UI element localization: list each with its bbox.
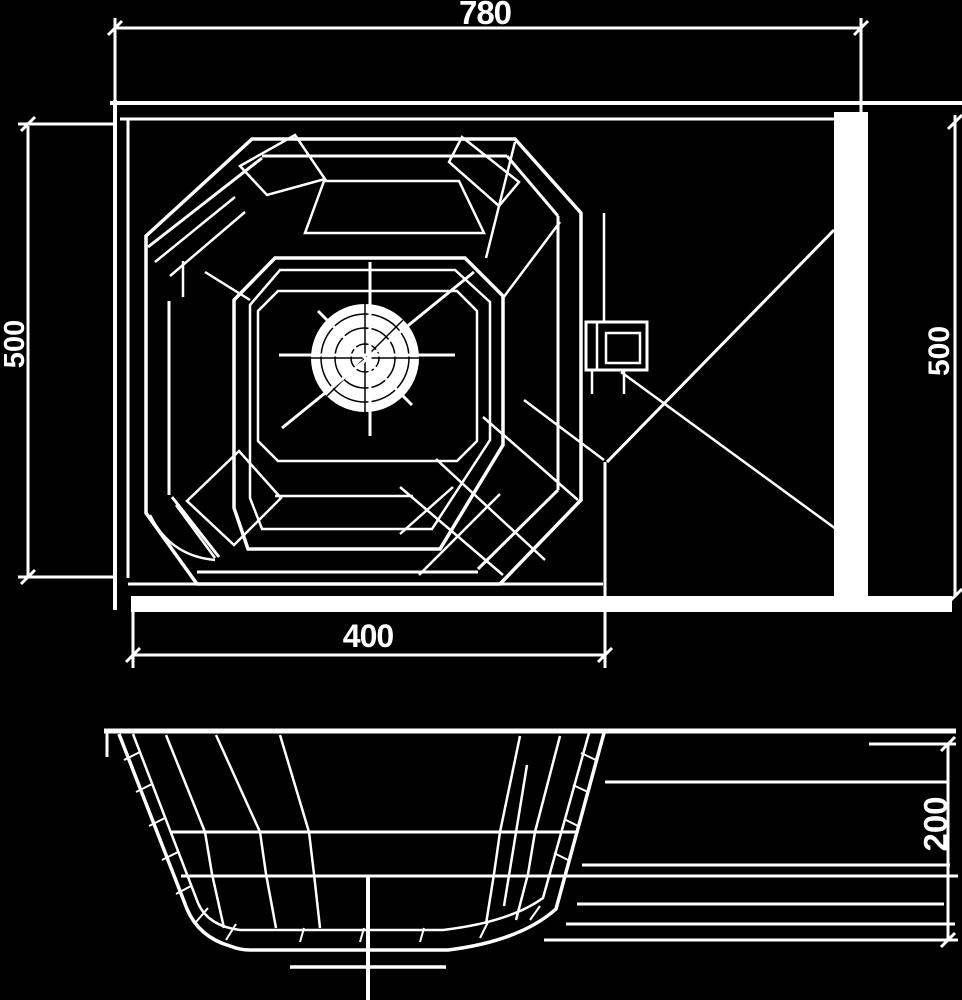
svg-text:200: 200 [917,796,954,851]
svg-text:780: 780 [459,0,511,31]
svg-text:400: 400 [343,618,394,654]
svg-text:500: 500 [0,320,31,368]
svg-text:500: 500 [923,326,956,376]
